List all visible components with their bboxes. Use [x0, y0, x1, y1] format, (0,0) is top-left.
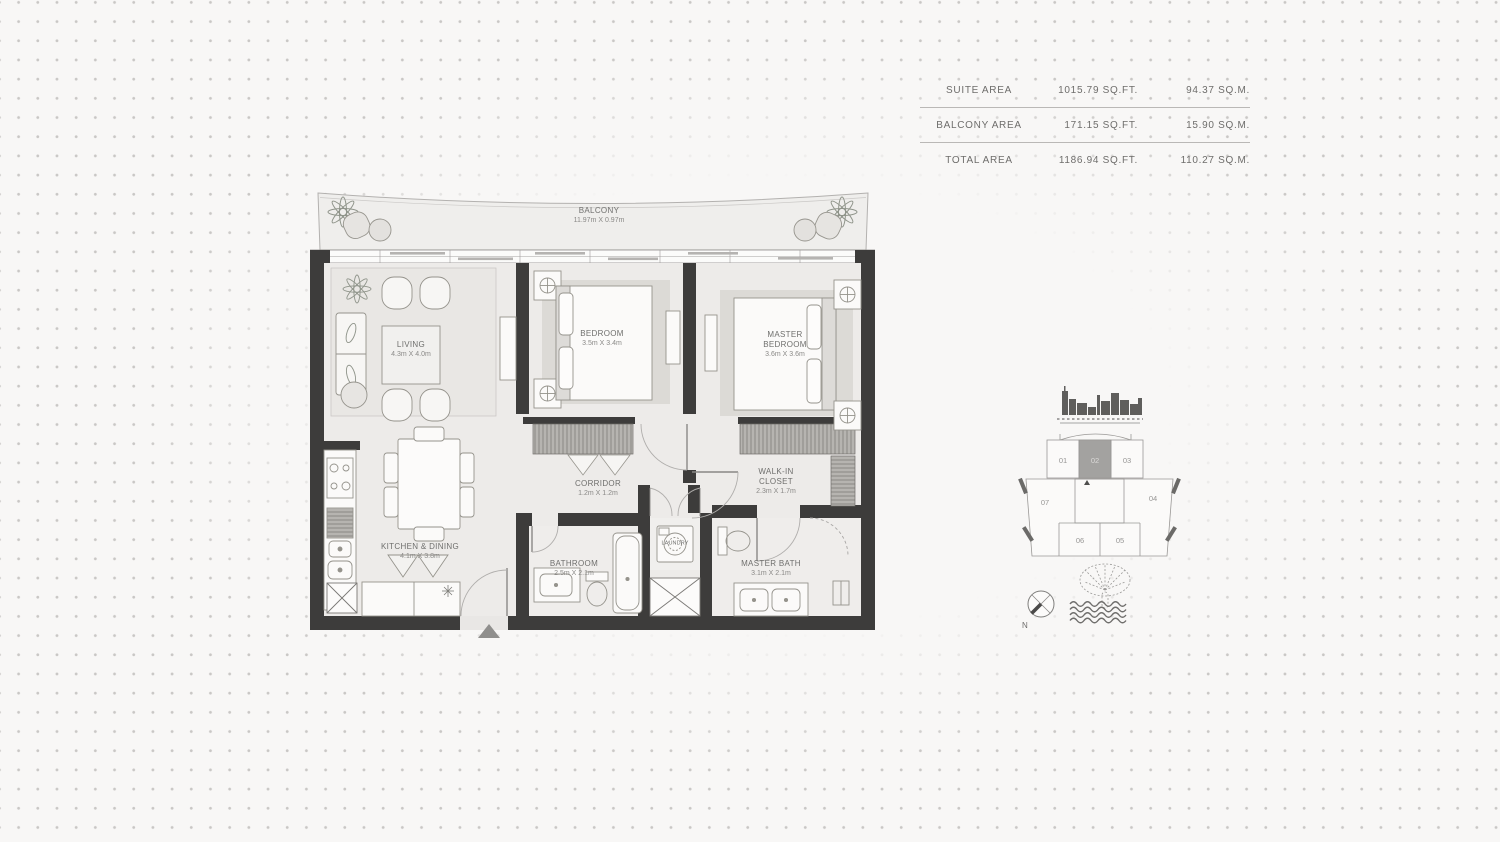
wardrobe [666, 311, 680, 364]
balcony-area [318, 193, 868, 250]
armchair [420, 277, 450, 309]
shelf [500, 317, 516, 380]
unit-label-01: 01 [1059, 456, 1067, 465]
area-sqft: 1186.94 SQ.FT. [1038, 155, 1138, 166]
armchair [420, 389, 450, 421]
location-icons-drawing: N [1010, 560, 1180, 640]
unit-label-06: 06 [1076, 536, 1084, 545]
unit-label-07: 07 [1041, 498, 1049, 507]
floorplan: BALCONY 11.97m X 0.97m LIVING 4.3m X 4.0… [310, 183, 875, 653]
area-sqft: 171.15 SQ.FT. [1038, 120, 1138, 131]
toilet [586, 572, 608, 581]
area-label: TOTAL AREA [920, 155, 1038, 166]
entrance-threshold [460, 616, 508, 630]
unit-label-05: 05 [1116, 536, 1124, 545]
chair [414, 527, 444, 541]
area-sqm: 15.90 SQ.M. [1138, 120, 1250, 131]
area-sqft: 1015.79 SQ.FT. [1038, 85, 1138, 96]
window-band [310, 250, 875, 263]
unit-label-04: 04 [1149, 494, 1157, 503]
chair [414, 427, 444, 441]
bathtub [613, 533, 642, 613]
building-keyplan: 01 02 03 04 05 06 07 [1005, 383, 1195, 583]
table-row: SUITE AREA 1015.79 SQ.FT. 94.37 SQ.M. [920, 73, 1250, 108]
chair [460, 453, 474, 483]
area-table: SUITE AREA 1015.79 SQ.FT. 94.37 SQ.M. BA… [920, 73, 1250, 177]
chair [384, 487, 398, 517]
armchair [382, 389, 412, 421]
waves-icon [1070, 602, 1126, 623]
unit-label-02: 02 [1091, 456, 1099, 465]
kitchen-furniture [324, 427, 474, 616]
unit-label-03: 03 [1123, 456, 1131, 465]
pillow [807, 305, 821, 349]
sink-unit [327, 508, 353, 538]
pillow [559, 347, 573, 389]
pillow [807, 359, 821, 403]
floorplan-drawing [310, 183, 875, 653]
shelf [705, 315, 717, 371]
area-sqm: 94.37 SQ.M. [1138, 85, 1250, 96]
skyline-icon [1062, 386, 1142, 415]
location-icons: N [1010, 560, 1180, 645]
compass-north-label: N [1022, 621, 1028, 630]
dining-table [398, 439, 460, 529]
area-label: BALCONY AREA [920, 120, 1038, 131]
counter [362, 582, 460, 616]
pillow [559, 293, 573, 335]
chair [384, 453, 398, 483]
keyplan-drawing: 01 02 03 04 05 06 07 [1005, 383, 1195, 578]
armchair [382, 277, 412, 309]
table-row: TOTAL AREA 1186.94 SQ.FT. 110.27 SQ.M. [920, 143, 1250, 177]
coffee-table [382, 326, 440, 384]
washer-icon [657, 526, 693, 562]
table-row: BALCONY AREA 171.15 SQ.FT. 15.90 SQ.M. [920, 108, 1250, 143]
side-table [341, 382, 367, 408]
area-sqm: 110.27 SQ.M. [1138, 155, 1250, 166]
chair [460, 487, 474, 517]
compass-icon: N [1022, 591, 1054, 630]
page: SUITE AREA 1015.79 SQ.FT. 94.37 SQ.M. BA… [0, 0, 1500, 842]
area-label: SUITE AREA [920, 85, 1038, 96]
